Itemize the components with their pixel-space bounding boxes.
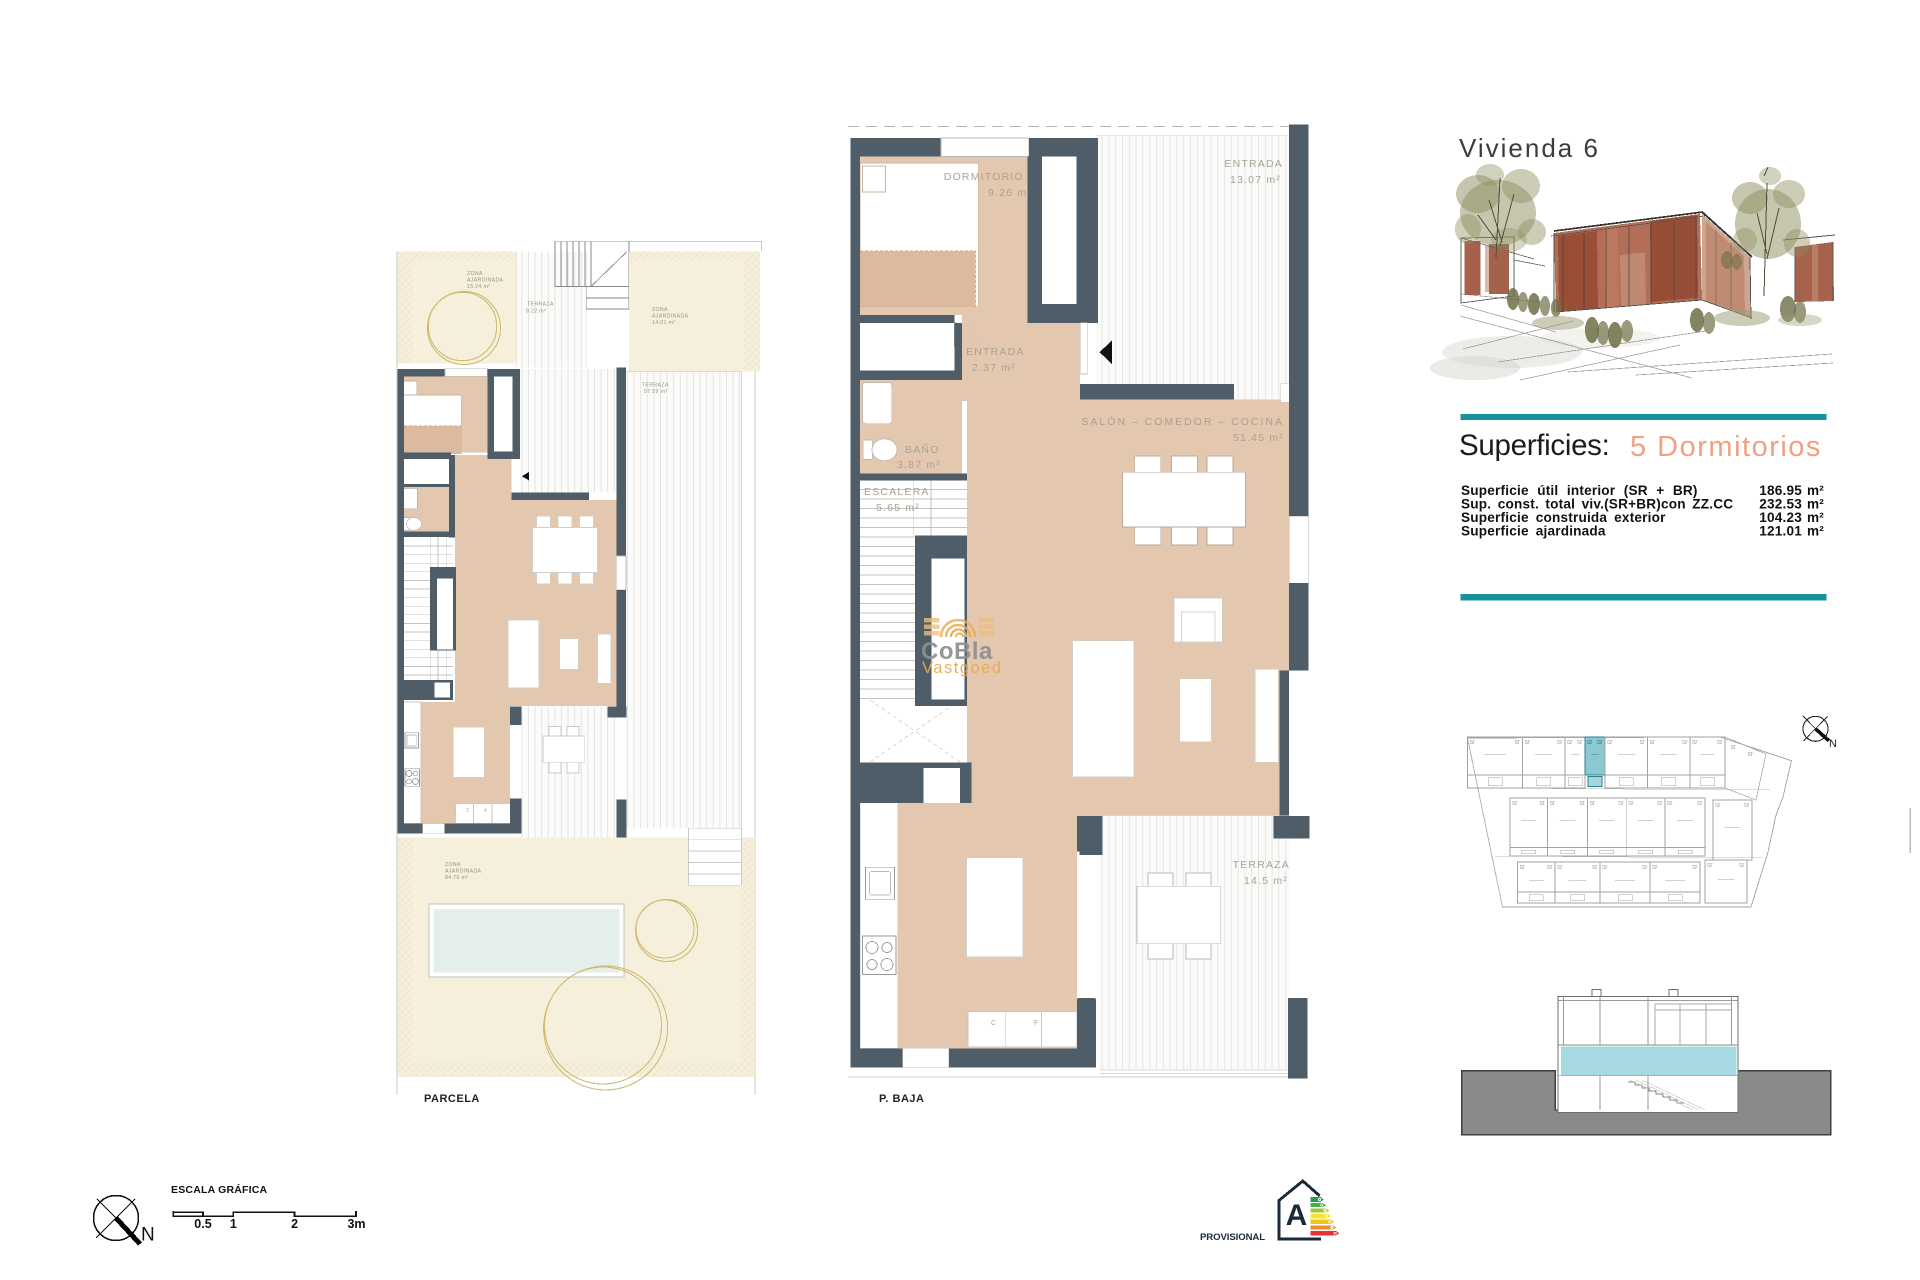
svg-text:3m: 3m (347, 1217, 365, 1231)
svg-text:2: 2 (466, 808, 469, 814)
svg-text:ZONA: ZONA (467, 271, 483, 277)
svg-text:P. BAJA: P. BAJA (879, 1093, 924, 1105)
svg-text:ENTRADA: ENTRADA (966, 346, 1025, 358)
svg-text:121.01: 121.01 (1759, 524, 1802, 539)
svg-text:14.01 m²: 14.01 m² (652, 320, 675, 326)
svg-text:TERRAZA: TERRAZA (527, 302, 554, 308)
svg-text:2.37 m²: 2.37 m² (972, 362, 1016, 374)
svg-text:Vivienda 6: Vivienda 6 (1459, 133, 1600, 163)
svg-text:2: 2 (291, 1217, 298, 1231)
svg-text:ZONA: ZONA (652, 307, 668, 313)
svg-text:m²: m² (1807, 524, 1824, 539)
svg-text:PROVISIONAL: PROVISIONAL (1200, 1232, 1265, 1243)
svg-text:A: A (1286, 1199, 1308, 1232)
svg-text:AJARDINADA: AJARDINADA (445, 869, 482, 875)
svg-text:14.5 m²: 14.5 m² (1244, 875, 1288, 887)
svg-text:3.87 m²: 3.87 m² (897, 459, 941, 471)
svg-text:N: N (1829, 738, 1837, 750)
svg-text:4: 4 (484, 808, 487, 814)
svg-text:84.76 m²: 84.76 m² (445, 875, 468, 881)
svg-text:BAÑO: BAÑO (905, 443, 940, 456)
svg-text:SALÓN – COMEDOR – COCINA: SALÓN – COMEDOR – COCINA (1081, 415, 1284, 428)
svg-text:Vastgoed: Vastgoed (922, 659, 1003, 677)
svg-text:TERRAZA: TERRAZA (642, 383, 669, 389)
svg-text:AJARDINADA: AJARDINADA (467, 278, 504, 284)
svg-text:13.07 m²: 13.07 m² (1230, 174, 1281, 186)
svg-text:ESCALA GRÁFICA: ESCALA GRÁFICA (171, 1183, 268, 1196)
svg-text:Superficies:: Superficies: (1459, 429, 1610, 462)
svg-text:Superficie ajardinada: Superficie ajardinada (1461, 524, 1606, 539)
svg-text:DORMITORIO 2: DORMITORIO 2 (944, 171, 1035, 183)
svg-text:8.22 m²: 8.22 m² (526, 309, 546, 315)
svg-text:AJARDINADA: AJARDINADA (652, 314, 689, 320)
svg-text:C: C (991, 1020, 996, 1027)
svg-text:F: F (1034, 1020, 1038, 1027)
svg-text:51.45 m²: 51.45 m² (1233, 432, 1284, 444)
svg-text:PARCELA: PARCELA (424, 1093, 480, 1105)
svg-text:ESCALERA: ESCALERA (864, 486, 930, 498)
svg-text:TERRAZA: TERRAZA (1233, 859, 1290, 871)
svg-text:9.26 m²: 9.26 m² (988, 187, 1032, 199)
svg-text:1: 1 (230, 1217, 237, 1231)
svg-text:ENTRADA: ENTRADA (1224, 158, 1283, 170)
svg-text:5.65 m²: 5.65 m² (876, 502, 920, 514)
svg-text:5 Dormitorios: 5 Dormitorios (1630, 431, 1822, 463)
svg-text:15.24 m²: 15.24 m² (467, 284, 490, 290)
svg-text:57.59 m²: 57.59 m² (644, 389, 667, 395)
svg-text:N: N (141, 1225, 155, 1246)
svg-text:ZONA: ZONA (445, 862, 461, 868)
svg-text:0.5: 0.5 (194, 1217, 211, 1231)
